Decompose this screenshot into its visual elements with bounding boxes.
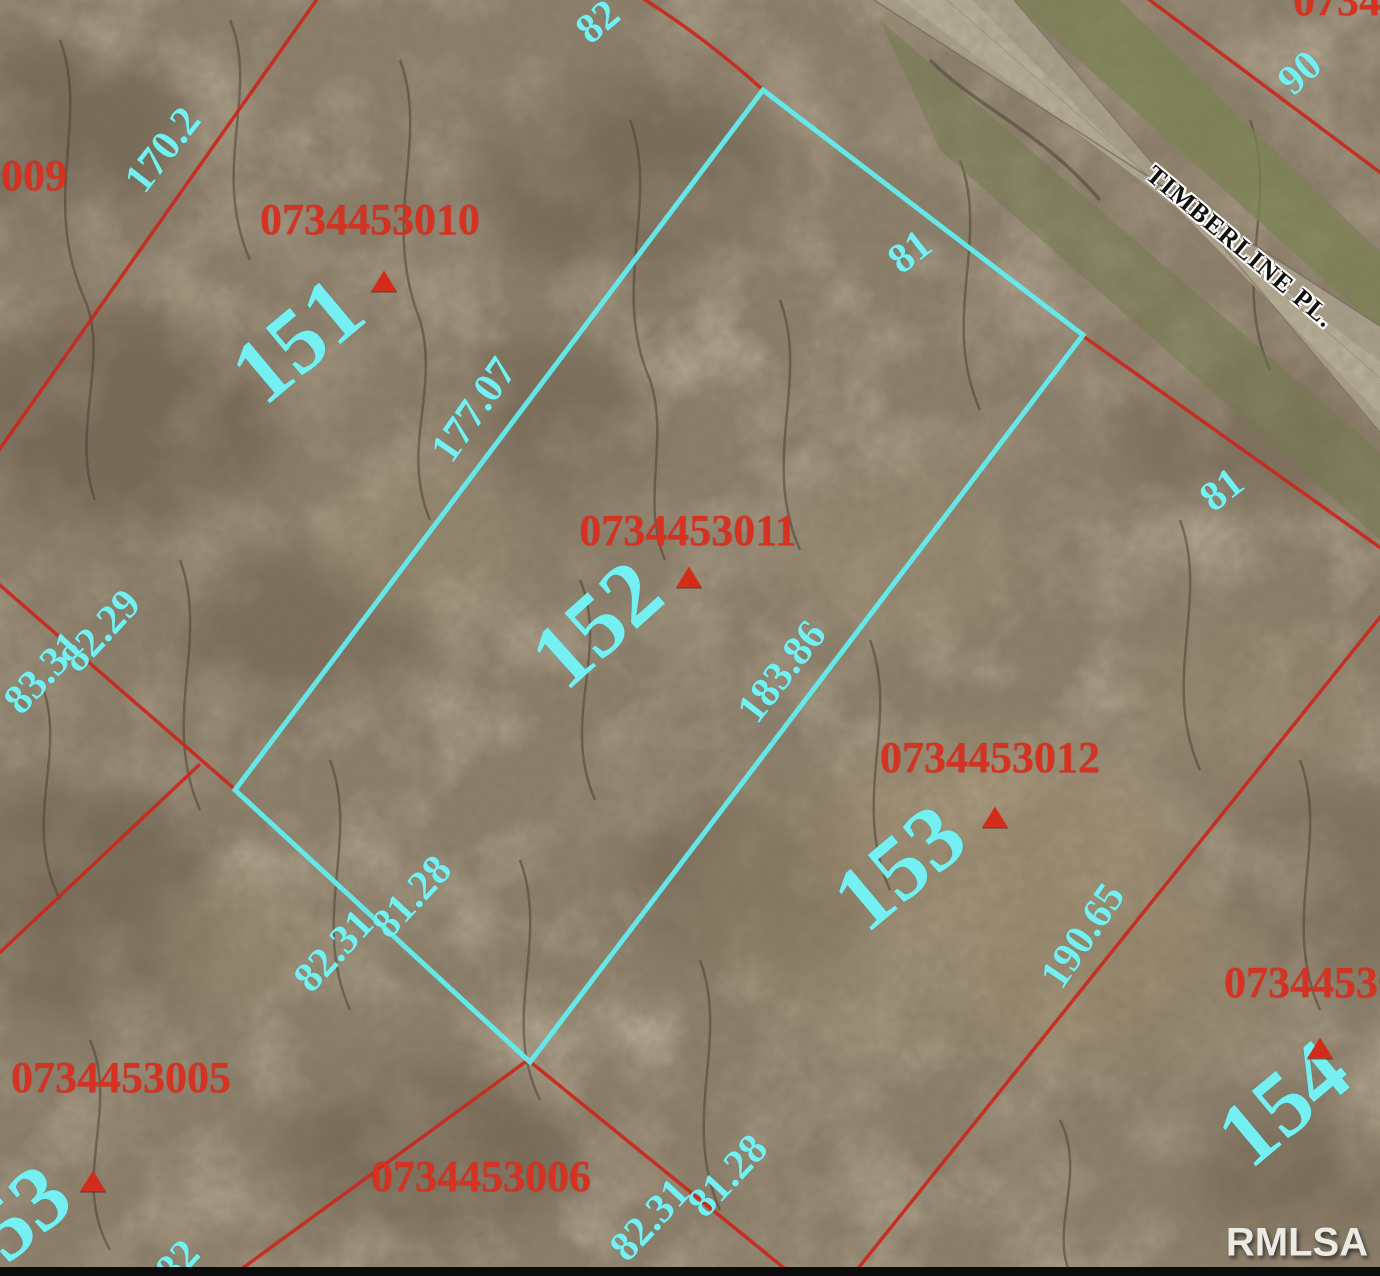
map-canvas[interactable]: 0734453010073445301107344530120734453005… [0, 0, 1380, 1276]
bottom-border-bar [0, 1267, 1380, 1276]
mls-watermark: RMLSA [1226, 1221, 1368, 1266]
